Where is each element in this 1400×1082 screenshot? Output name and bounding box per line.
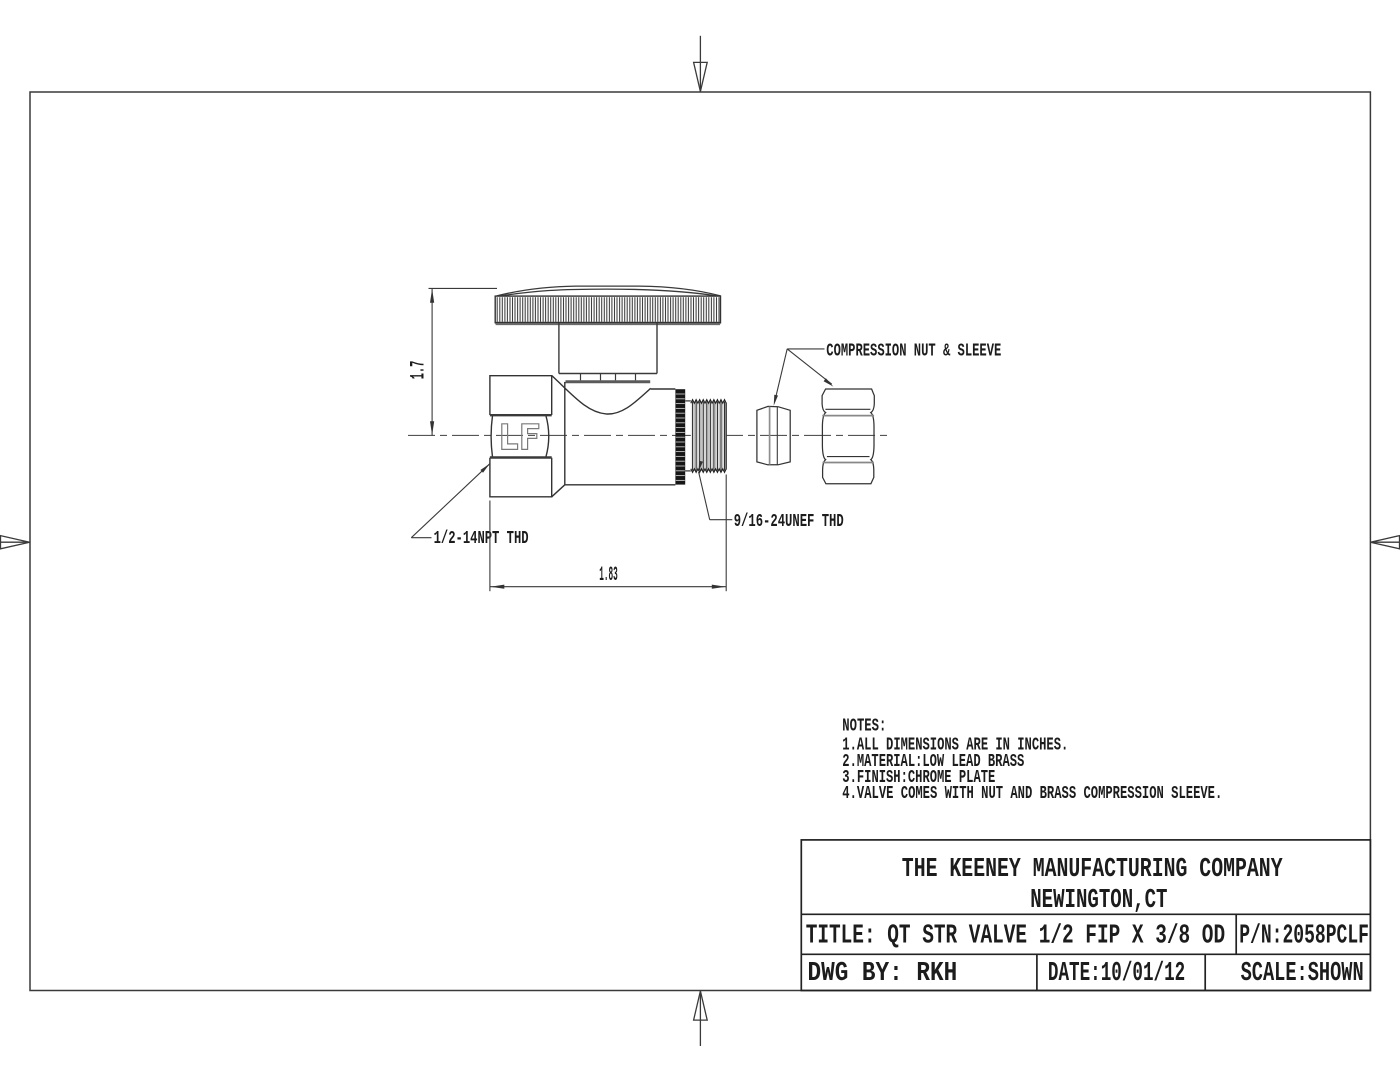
- svg-text:DATE:10/01/12: DATE:10/01/12: [1048, 959, 1185, 989]
- svg-text:1.7: 1.7: [408, 361, 431, 380]
- svg-text:P/N:2058PCLF: P/N:2058PCLF: [1239, 922, 1369, 952]
- svg-text:COMPRESSION NUT & SLEEVE: COMPRESSION NUT & SLEEVE: [826, 340, 1001, 361]
- svg-text:SCALE:SHOWN: SCALE:SHOWN: [1241, 959, 1364, 989]
- svg-text:DWG BY: RKH: DWG BY: RKH: [808, 959, 958, 989]
- svg-text:NOTES:: NOTES:: [842, 715, 886, 736]
- svg-text:THE KEENEY MANUFACTURING COMPA: THE KEENEY MANUFACTURING COMPANY: [902, 855, 1283, 885]
- svg-text:4.VALVE COMES WITH NUT AND BRA: 4.VALVE COMES WITH NUT AND BRASS COMPRES…: [842, 783, 1222, 804]
- svg-text:1.83: 1.83: [599, 564, 618, 587]
- svg-text:9/16-24UNEF THD: 9/16-24UNEF THD: [734, 511, 844, 532]
- svg-text:TITLE: QT STR VALVE 1/2 FIP X: TITLE: QT STR VALVE 1/2 FIP X 3/8 OD: [806, 922, 1225, 952]
- svg-text:1/2-14NPT THD: 1/2-14NPT THD: [434, 528, 529, 549]
- svg-text:NEWINGTON,CT: NEWINGTON,CT: [1030, 886, 1167, 916]
